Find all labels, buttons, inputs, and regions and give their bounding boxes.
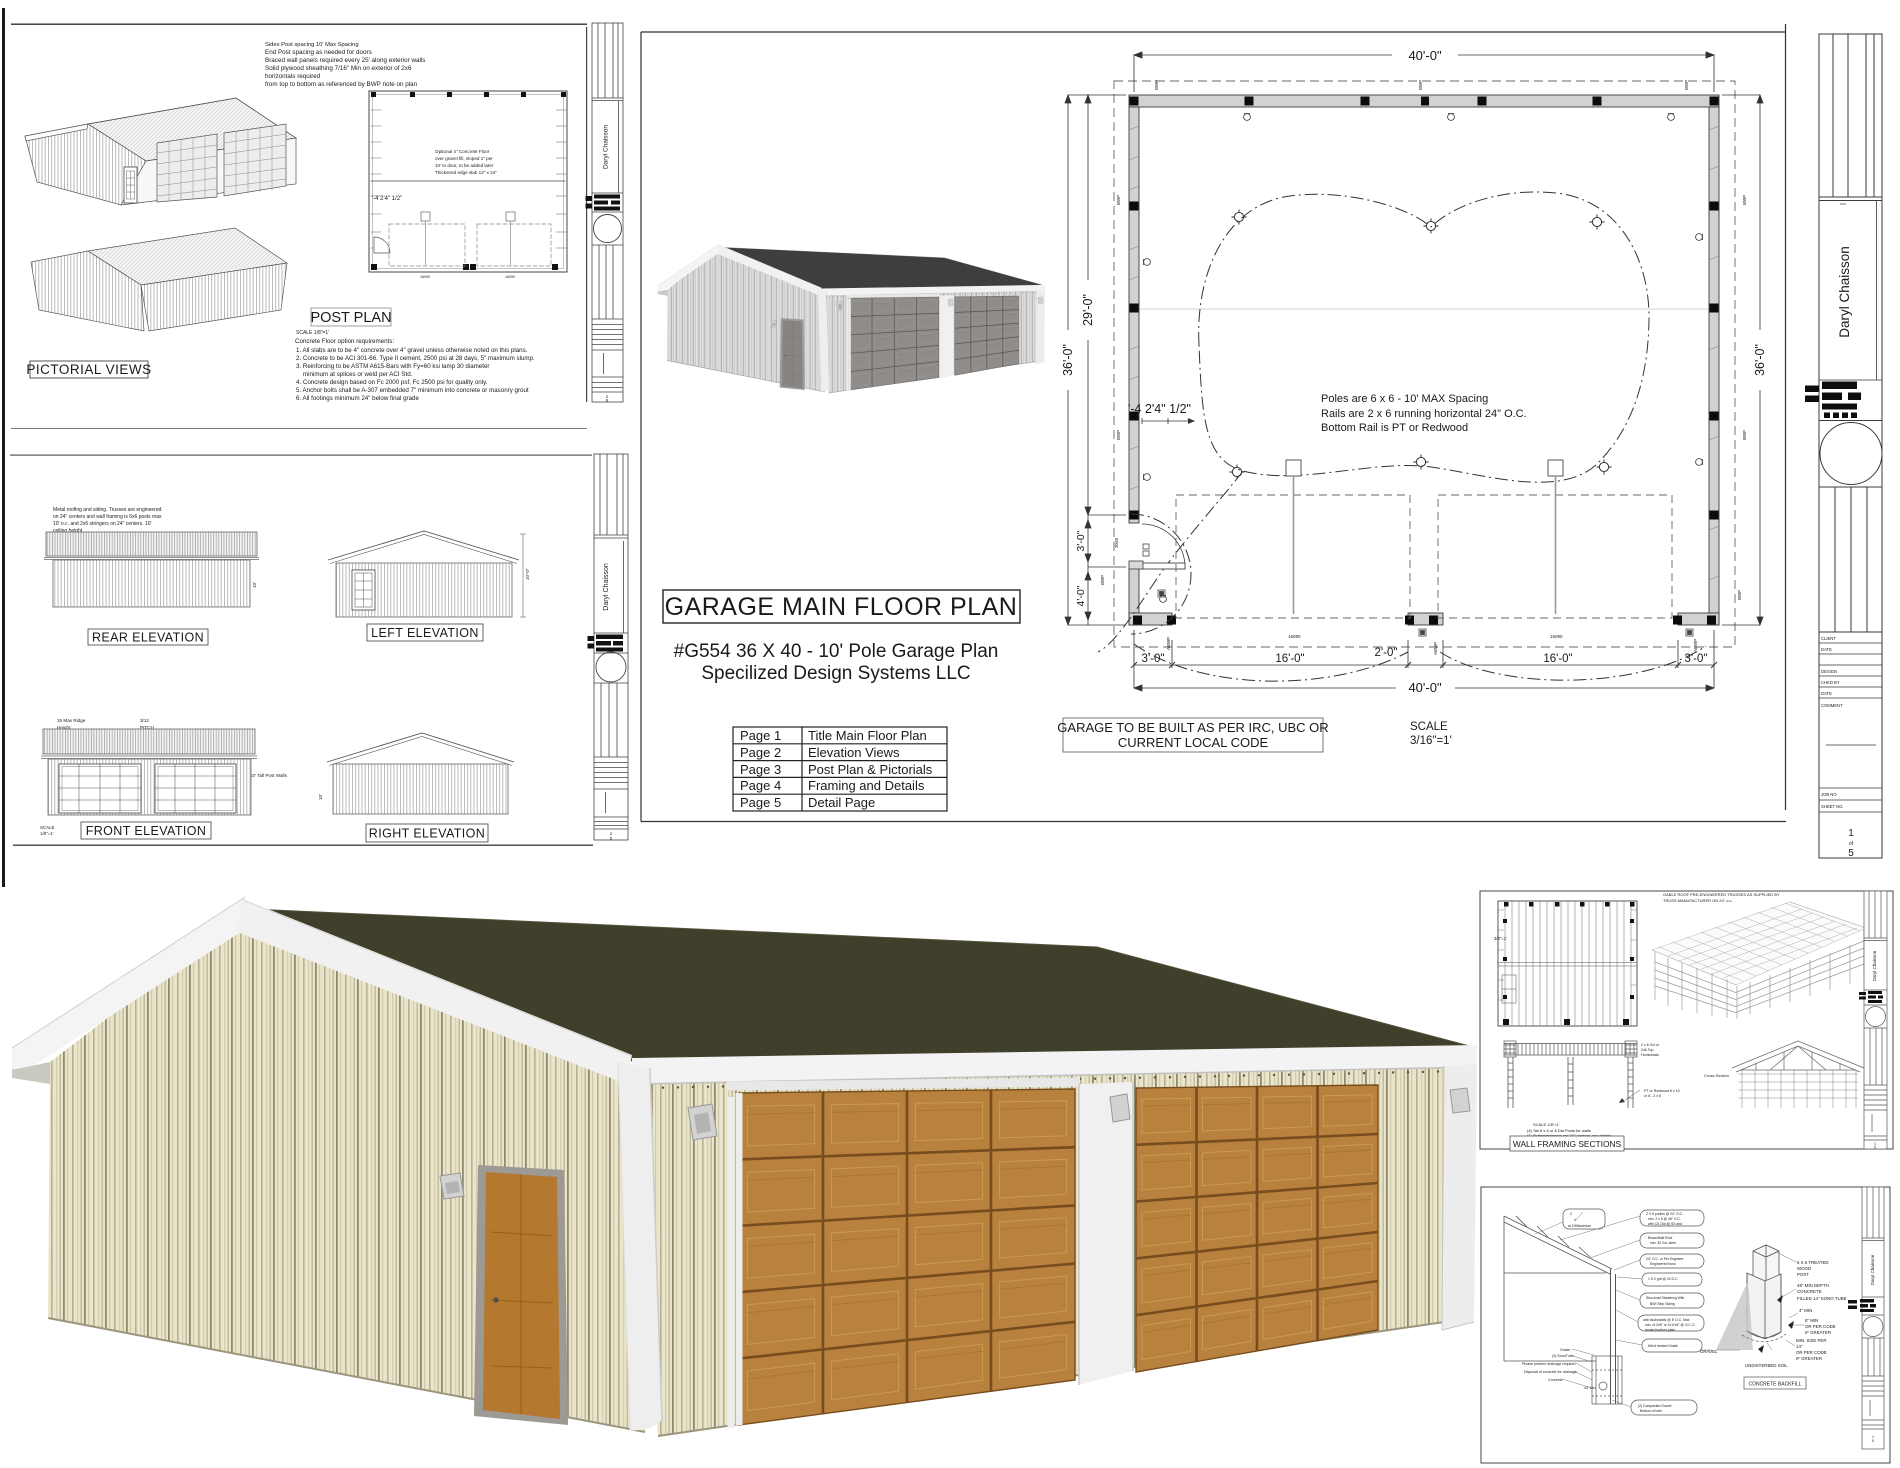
svg-text:BWP: BWP xyxy=(1418,80,1423,90)
svg-text:on 24" centers and wall framin: on 24" centers and wall framing is 6x6 p… xyxy=(53,514,162,520)
svg-text:ABWP: ABWP xyxy=(1433,642,1438,655)
svg-text:Concrete: Concrete xyxy=(1548,1378,1563,1382)
svg-text:5. Anchor bolts shall be A-3: 5. Anchor bolts shall be A-307 embedded … xyxy=(296,387,529,394)
svg-text:Solid plywood sheathing 7/16": Solid plywood sheathing 7/16" Min on ext… xyxy=(265,65,412,72)
svg-text:16090: 16090 xyxy=(505,275,515,279)
svg-text:Structural Sheathing With: Structural Sheathing With xyxy=(1646,1296,1685,1300)
svg-text:Page 1: Page 1 xyxy=(740,728,781,743)
svg-text:(4) SonoTube: (4) SonoTube xyxy=(1552,1354,1574,1358)
svg-text:REAR ELEVATION: REAR ELEVATION xyxy=(92,631,204,645)
svg-text:16090: 16090 xyxy=(1288,634,1301,639)
svg-text:LEFT ELEVATION: LEFT ELEVATION xyxy=(371,626,479,640)
svg-text:3/16"=1': 3/16"=1' xyxy=(1410,735,1452,747)
svg-text:4'-0": 4'-0" xyxy=(1075,585,1087,606)
svg-text:CONCRETE BACKFILL: CONCRETE BACKFILL xyxy=(1748,1382,1801,1388)
svg-text:6. All footings minimum 24": 6. All footings minimum 24" below final … xyxy=(296,395,419,402)
svg-text:29'-0": 29'-0" xyxy=(1081,294,1095,326)
svg-text:JOB NO: JOB NO xyxy=(1821,792,1837,797)
svg-text:POST PLAN: POST PLAN xyxy=(310,310,391,326)
svg-text:horizontals required: horizontals required xyxy=(265,73,321,80)
svg-text:treated bottom plate: treated bottom plate xyxy=(1645,1328,1675,1332)
svg-text:CHKD BY: CHKD BY xyxy=(1821,680,1840,685)
svg-text:Elevation Views: Elevation Views xyxy=(808,745,900,760)
svg-text:FRONT ELEVATION: FRONT ELEVATION xyxy=(86,824,207,838)
svg-text:Page 2: Page 2 xyxy=(740,745,781,760)
svg-text:Horizontals: Horizontals xyxy=(1641,1053,1659,1057)
svg-text:3'-0": 3'-0" xyxy=(1685,653,1708,665)
svg-text:GRAVEL: GRAVEL xyxy=(1700,1349,1718,1354)
svg-text:TRUSS MANUFACTURER ON 24" o.c.: TRUSS MANUFACTURER ON 24" o.c. xyxy=(1663,898,1733,903)
svg-text:Bottom of hole: Bottom of hole xyxy=(1640,1409,1662,1413)
svg-text:#G554 36 X 40 - 10' Pole Garag: #G554 36 X 40 - 10' Pole Garage Plan xyxy=(674,641,999,662)
svg-text:BWP: BWP xyxy=(1684,80,1689,90)
svg-text:DATE: DATE xyxy=(1821,647,1832,652)
svg-text:16090: 16090 xyxy=(1550,634,1563,639)
svg-text:Bottom Rail is PT or Redwood: Bottom Rail is PT or Redwood xyxy=(1321,422,1468,434)
svg-text:DESIGN: DESIGN xyxy=(1821,669,1837,674)
svg-text:48" MIN DEPTH: 48" MIN DEPTH xyxy=(1797,1283,1829,1288)
svg-text:1.5 X grit @ 24 O.C: 1.5 X grit @ 24 O.C xyxy=(1648,1277,1678,1281)
svg-text:3/8"=1': 3/8"=1' xyxy=(1494,936,1507,941)
svg-text:8" MIN: 8" MIN xyxy=(1805,1318,1818,1323)
svg-text:minimum at splices or weld per: minimum at splices or weld per ACI Std. xyxy=(303,371,413,378)
svg-text:Detail Page: Detail Page xyxy=(808,795,875,810)
svg-text:Braced wall panels required ev: Braced wall panels required every 25' al… xyxy=(265,57,425,64)
svg-text:BWP: BWP xyxy=(1116,195,1121,205)
svg-text:Daryl Chaisson: Daryl Chaisson xyxy=(603,563,610,611)
svg-text:Daryl Chaisson: Daryl Chaisson xyxy=(1837,246,1852,338)
svg-text:IF GREATER: IF GREATER xyxy=(1805,1330,1831,1335)
svg-text:DATE: DATE xyxy=(1821,691,1832,696)
svg-text:GARAGE MAIN FLOOR PLAN: GARAGE MAIN FLOOR PLAN xyxy=(665,593,1018,621)
svg-text:10': 10' xyxy=(318,794,323,800)
svg-text:POST: POST xyxy=(1797,1272,1809,1277)
svg-text:Framing and Details: Framing and Details xyxy=(808,778,925,793)
svg-text:End Post spacing as needed for: End Post spacing as needed for doors xyxy=(265,49,372,56)
svg-text:COMMENT: COMMENT xyxy=(1821,703,1843,708)
svg-text:SCALE 1/8"=1': SCALE 1/8"=1' xyxy=(1533,1122,1560,1127)
svg-text:min. of 2x6" or 2x 6'x6" @ O.: min. of 2x6" or 2x 6'x6" @ O.C.O xyxy=(1645,1323,1695,1327)
svg-text:3'-0": 3'-0" xyxy=(1075,530,1087,551)
svg-text:10' to door, to be added later: 10' to door, to be added later xyxy=(435,163,494,168)
svg-text:5: 5 xyxy=(1848,848,1854,859)
svg-text:10' o.c. and 2x6 stringers on: 10' o.c. and 2x6 stringers on 24" center… xyxy=(53,521,152,527)
svg-text:from top to bottom as referenc: from top to bottom as referenced by BWP … xyxy=(265,81,418,88)
svg-text:CONCRETE: CONCRETE xyxy=(1797,1289,1822,1294)
svg-text:4" MIN: 4" MIN xyxy=(1799,1308,1812,1313)
svg-text:MIN. SIZE PER: MIN. SIZE PER xyxy=(1796,1338,1827,1343)
svg-text:16'-0": 16'-0" xyxy=(1275,653,1304,665)
svg-text:36'-0": 36'-0" xyxy=(1061,344,1075,376)
svg-text:1: 1 xyxy=(1848,828,1854,839)
svg-text:5: 5 xyxy=(1872,1439,1874,1443)
svg-text:min. 30 Ga. steel: min. 30 Ga. steel xyxy=(1650,1241,1676,1245)
svg-text:4: 4 xyxy=(1574,1218,1576,1222)
svg-text:BWP: BWP xyxy=(1742,430,1747,440)
svg-text:14": 14" xyxy=(1796,1344,1803,1349)
svg-text:SHEET NO.: SHEET NO. xyxy=(1821,804,1844,809)
svg-text:Page 5: Page 5 xyxy=(740,795,781,810)
svg-text:Title Main Floor Plan: Title Main Floor Plan xyxy=(808,728,927,743)
svg-text:44' Min: 44' Min xyxy=(1584,1386,1595,1390)
svg-text:GARAGE TO BE BUILT AS PER IRC,: GARAGE TO BE BUILT AS PER IRC, UBC OR xyxy=(1057,720,1328,735)
svg-text:Optional 4" Concrete Floor: Optional 4" Concrete Floor xyxy=(435,149,490,154)
svg-text:ABWP: ABWP xyxy=(1693,639,1698,652)
svg-text:CURRENT LOCAL CODE: CURRENT LOCAL CODE xyxy=(1118,735,1269,750)
svg-text:BWP: BWP xyxy=(1742,195,1747,205)
svg-text:2 x 6 Grt or: 2 x 6 Grt or xyxy=(1641,1043,1660,1047)
svg-text:Post Plan & Pictorials: Post Plan & Pictorials xyxy=(808,762,933,777)
svg-text:WALL FRAMING SECTIONS: WALL FRAMING SECTIONS xyxy=(1513,1139,1622,1149)
svg-text:over gravel fill, sloped 1" pe: over gravel fill, sloped 1" per xyxy=(435,156,493,161)
svg-text:10'-0": 10'-0" xyxy=(525,568,530,580)
svg-text:Sides Post spacing 10' Max Spa: Sides Post spacing 10' Max Spacing xyxy=(265,42,359,48)
svg-text:Blown/Batt Roof: Blown/Batt Roof xyxy=(1648,1236,1672,1240)
svg-text:Daryl Chaisson: Daryl Chaisson xyxy=(1870,1254,1875,1285)
svg-text:2. Concrete to be ACI 301-66: 2. Concrete to be ACI 301-66. Type II ce… xyxy=(296,355,535,362)
svg-text:Specilized Design Systems LLC: Specilized Design Systems LLC xyxy=(701,663,970,684)
svg-text:4. Concrete design based on: 4. Concrete design based on Fc 2000 psf,… xyxy=(296,379,488,386)
svg-text:Min'd treated Grade: Min'd treated Grade xyxy=(1648,1344,1678,1348)
svg-text:2x6 Top: 2x6 Top xyxy=(1641,1048,1654,1052)
svg-text:2'-0": 2'-0" xyxy=(1375,647,1398,659)
svg-text:SCALE 1/8"=1': SCALE 1/8"=1' xyxy=(296,330,329,336)
svg-text:Metal roofing and siding. Tru: Metal roofing and siding. Trusses are en… xyxy=(53,507,162,513)
svg-text:10': 10' xyxy=(252,582,257,588)
svg-text:BWI Strip Siding: BWI Strip Siding xyxy=(1650,1302,1675,1306)
svg-text:'-4 2'4" 1/2": '-4 2'4" 1/2" xyxy=(372,196,402,202)
svg-text:Rails are 2 x 6 running horizo: Rails are 2 x 6 running horizontal 24" O… xyxy=(1321,408,1527,420)
svg-text:1. All slabs are to be 4" co: 1. All slabs are to be 4" concrete over … xyxy=(296,347,528,354)
svg-text:(2) Compacted Gravel: (2) Compacted Gravel xyxy=(1638,1404,1672,1408)
svg-text:UNDISTERBED SOIL: UNDISTERBED SOIL xyxy=(1745,1363,1788,1368)
svg-text:BWP: BWP xyxy=(1100,575,1105,585)
svg-text:1/8"=1': 1/8"=1' xyxy=(40,831,54,836)
svg-text:Disposal of concrete for drain: Disposal of concrete for drainage xyxy=(1524,1370,1577,1374)
svg-text:16'-0": 16'-0" xyxy=(1543,653,1572,665)
svg-text:Engineered truss: Engineered truss xyxy=(1650,1262,1676,1266)
svg-text:3. Reinforcing to be ASTM A: 3. Reinforcing to be ASTM A615-Bars with… xyxy=(296,363,489,370)
svg-text:at 2/4Maximum: at 2/4Maximum xyxy=(1568,1224,1591,1228)
svg-text:Daryl Chaisson: Daryl Chaisson xyxy=(1872,950,1877,981)
svg-text:FILLED 14" SONO TUBE: FILLED 14" SONO TUBE xyxy=(1797,1296,1847,1301)
svg-text:10' Tall Post Walls: 10' Tall Post Walls xyxy=(250,773,288,778)
svg-text:Page 4: Page 4 xyxy=(740,778,781,793)
svg-text:Thickened edge slab 12" x 24": Thickened edge slab 12" x 24" xyxy=(435,170,497,175)
svg-text:SCALE: SCALE xyxy=(40,825,54,830)
svg-text:15 Max Ridge: 15 Max Ridge xyxy=(57,718,86,723)
svg-text:Concrete Floor option requirem: Concrete Floor option requirements: xyxy=(295,338,394,345)
svg-text:SCALE: SCALE xyxy=(1410,721,1448,733)
svg-text:40'-0": 40'-0" xyxy=(1408,680,1442,695)
svg-text:2 X 6 purlins @ 24" O.C.: 2 X 6 purlins @ 24" O.C. xyxy=(1646,1212,1683,1216)
svg-text:BWP: BWP xyxy=(1737,590,1742,600)
svg-text:min. 2 x 6 @ 48" O.C.: min. 2 x 6 @ 48" O.C. xyxy=(1648,1217,1681,1221)
svg-text:OR PER CODE: OR PER CODE xyxy=(1796,1350,1827,1355)
svg-text:or 8 - 2 x 6: or 8 - 2 x 6 xyxy=(1644,1094,1661,1098)
svg-text:OR PER CODE: OR PER CODE xyxy=(1805,1324,1836,1329)
svg-text:Daryl Chaisson: Daryl Chaisson xyxy=(603,125,610,169)
svg-text:RIGHT ELEVATION: RIGHT ELEVATION xyxy=(369,827,485,841)
svg-text:ABWP: ABWP xyxy=(1166,637,1171,650)
svg-text:16090: 16090 xyxy=(420,275,430,279)
svg-text:GABLE ROOF PRE-ENGINEERED TRUS: GABLE ROOF PRE-ENGINEERED TRUSSES AS SUP… xyxy=(1663,892,1780,897)
svg-text:Poles are 6 x 6 - 10' MAX Spa: Poles are 6 x 6 - 10' MAX Spacing xyxy=(1321,393,1488,405)
svg-text:with (2) 16d @ SS and: with (2) 16d @ SS and xyxy=(1648,1222,1682,1226)
svg-text:wall studs/walls @ 8' O.C. Ma: wall studs/walls @ 8' O.C. Max xyxy=(1643,1318,1690,1322)
svg-text:24" O.C. or Per Engineer: 24" O.C. or Per Engineer xyxy=(1646,1257,1684,1261)
svg-text:3/12: 3/12 xyxy=(140,718,149,723)
svg-text:3048: 3048 xyxy=(1114,537,1119,548)
svg-text:PT or Redwood 6 x 10: PT or Redwood 6 x 10 xyxy=(1644,1089,1680,1093)
svg-text:BWP: BWP xyxy=(1116,430,1121,440)
svg-text:Grade: Grade xyxy=(1560,1348,1570,1352)
svg-text:'-4 2'4" 1/2": '-4 2'4" 1/2" xyxy=(1128,402,1191,416)
svg-text:2: 2 xyxy=(1570,1212,1572,1216)
svg-text:WOOD: WOOD xyxy=(1797,1266,1811,1271)
svg-text:3'-0": 3'-0" xyxy=(1142,653,1165,665)
svg-text:40'-0": 40'-0" xyxy=(1408,48,1442,63)
svg-text:IF GREATER: IF GREATER xyxy=(1796,1356,1822,1361)
svg-text:Please perform drainage requir: Please perform drainage required xyxy=(1522,1362,1576,1366)
svg-text:CLIENT: CLIENT xyxy=(1821,636,1836,641)
svg-text:6 X 6 TREATED: 6 X 6 TREATED xyxy=(1797,1260,1829,1265)
svg-text:BWP: BWP xyxy=(1154,80,1159,90)
svg-text:Cross Section: Cross Section xyxy=(1704,1073,1729,1078)
svg-text:of: of xyxy=(1849,841,1854,847)
svg-text:5: 5 xyxy=(1874,1146,1876,1150)
svg-text:36'-0": 36'-0" xyxy=(1753,344,1767,376)
svg-text:PICTORIAL VIEWS: PICTORIAL VIEWS xyxy=(26,362,151,377)
svg-text:Page 3: Page 3 xyxy=(740,762,781,777)
